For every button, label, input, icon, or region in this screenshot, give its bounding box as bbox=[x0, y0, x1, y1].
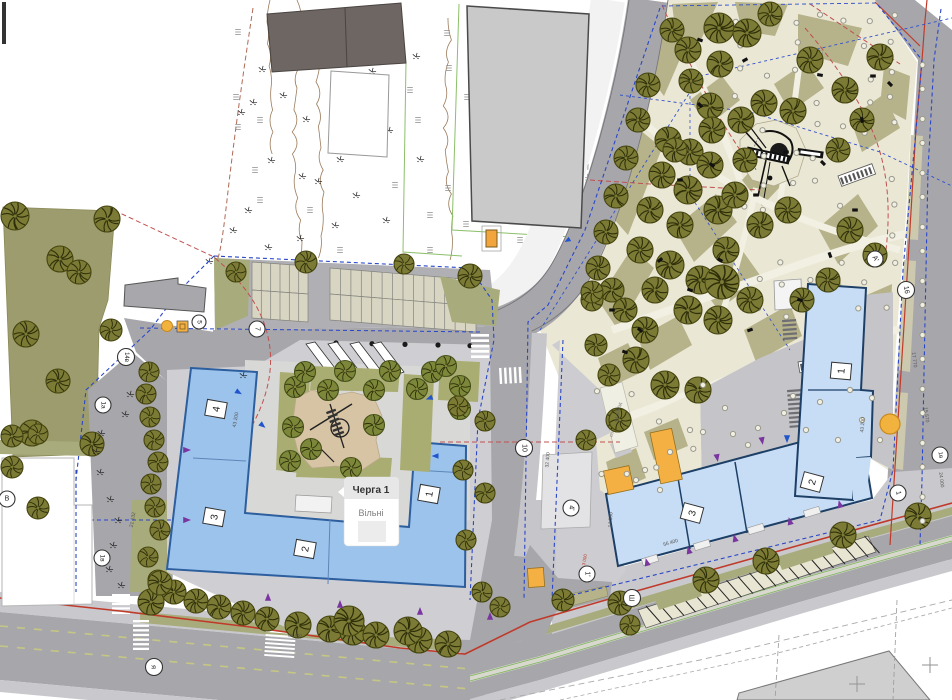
svg-text:16: 16 bbox=[902, 286, 910, 295]
svg-text:14в: 14в bbox=[123, 352, 129, 362]
svg-text:Вільні: Вільні bbox=[359, 508, 384, 518]
svg-text:4': 4' bbox=[568, 505, 575, 510]
svg-text:62 400: 62 400 bbox=[288, 633, 302, 638]
svg-text:1а: 1а bbox=[100, 401, 107, 409]
svg-text:5: 5 bbox=[196, 320, 203, 324]
svg-text:1в: 1в bbox=[99, 554, 106, 562]
svg-text:я: я bbox=[150, 665, 159, 669]
svg-text:1': 1' bbox=[584, 571, 591, 576]
svg-text:1в: 1в bbox=[936, 451, 943, 458]
svg-text:10: 10 bbox=[521, 444, 528, 452]
svg-text:В: В bbox=[5, 496, 10, 503]
svg-text:7: 7 bbox=[254, 327, 261, 331]
svg-text:Ш: Ш bbox=[628, 595, 637, 602]
svg-text:Черга 1: Черга 1 bbox=[353, 485, 390, 496]
